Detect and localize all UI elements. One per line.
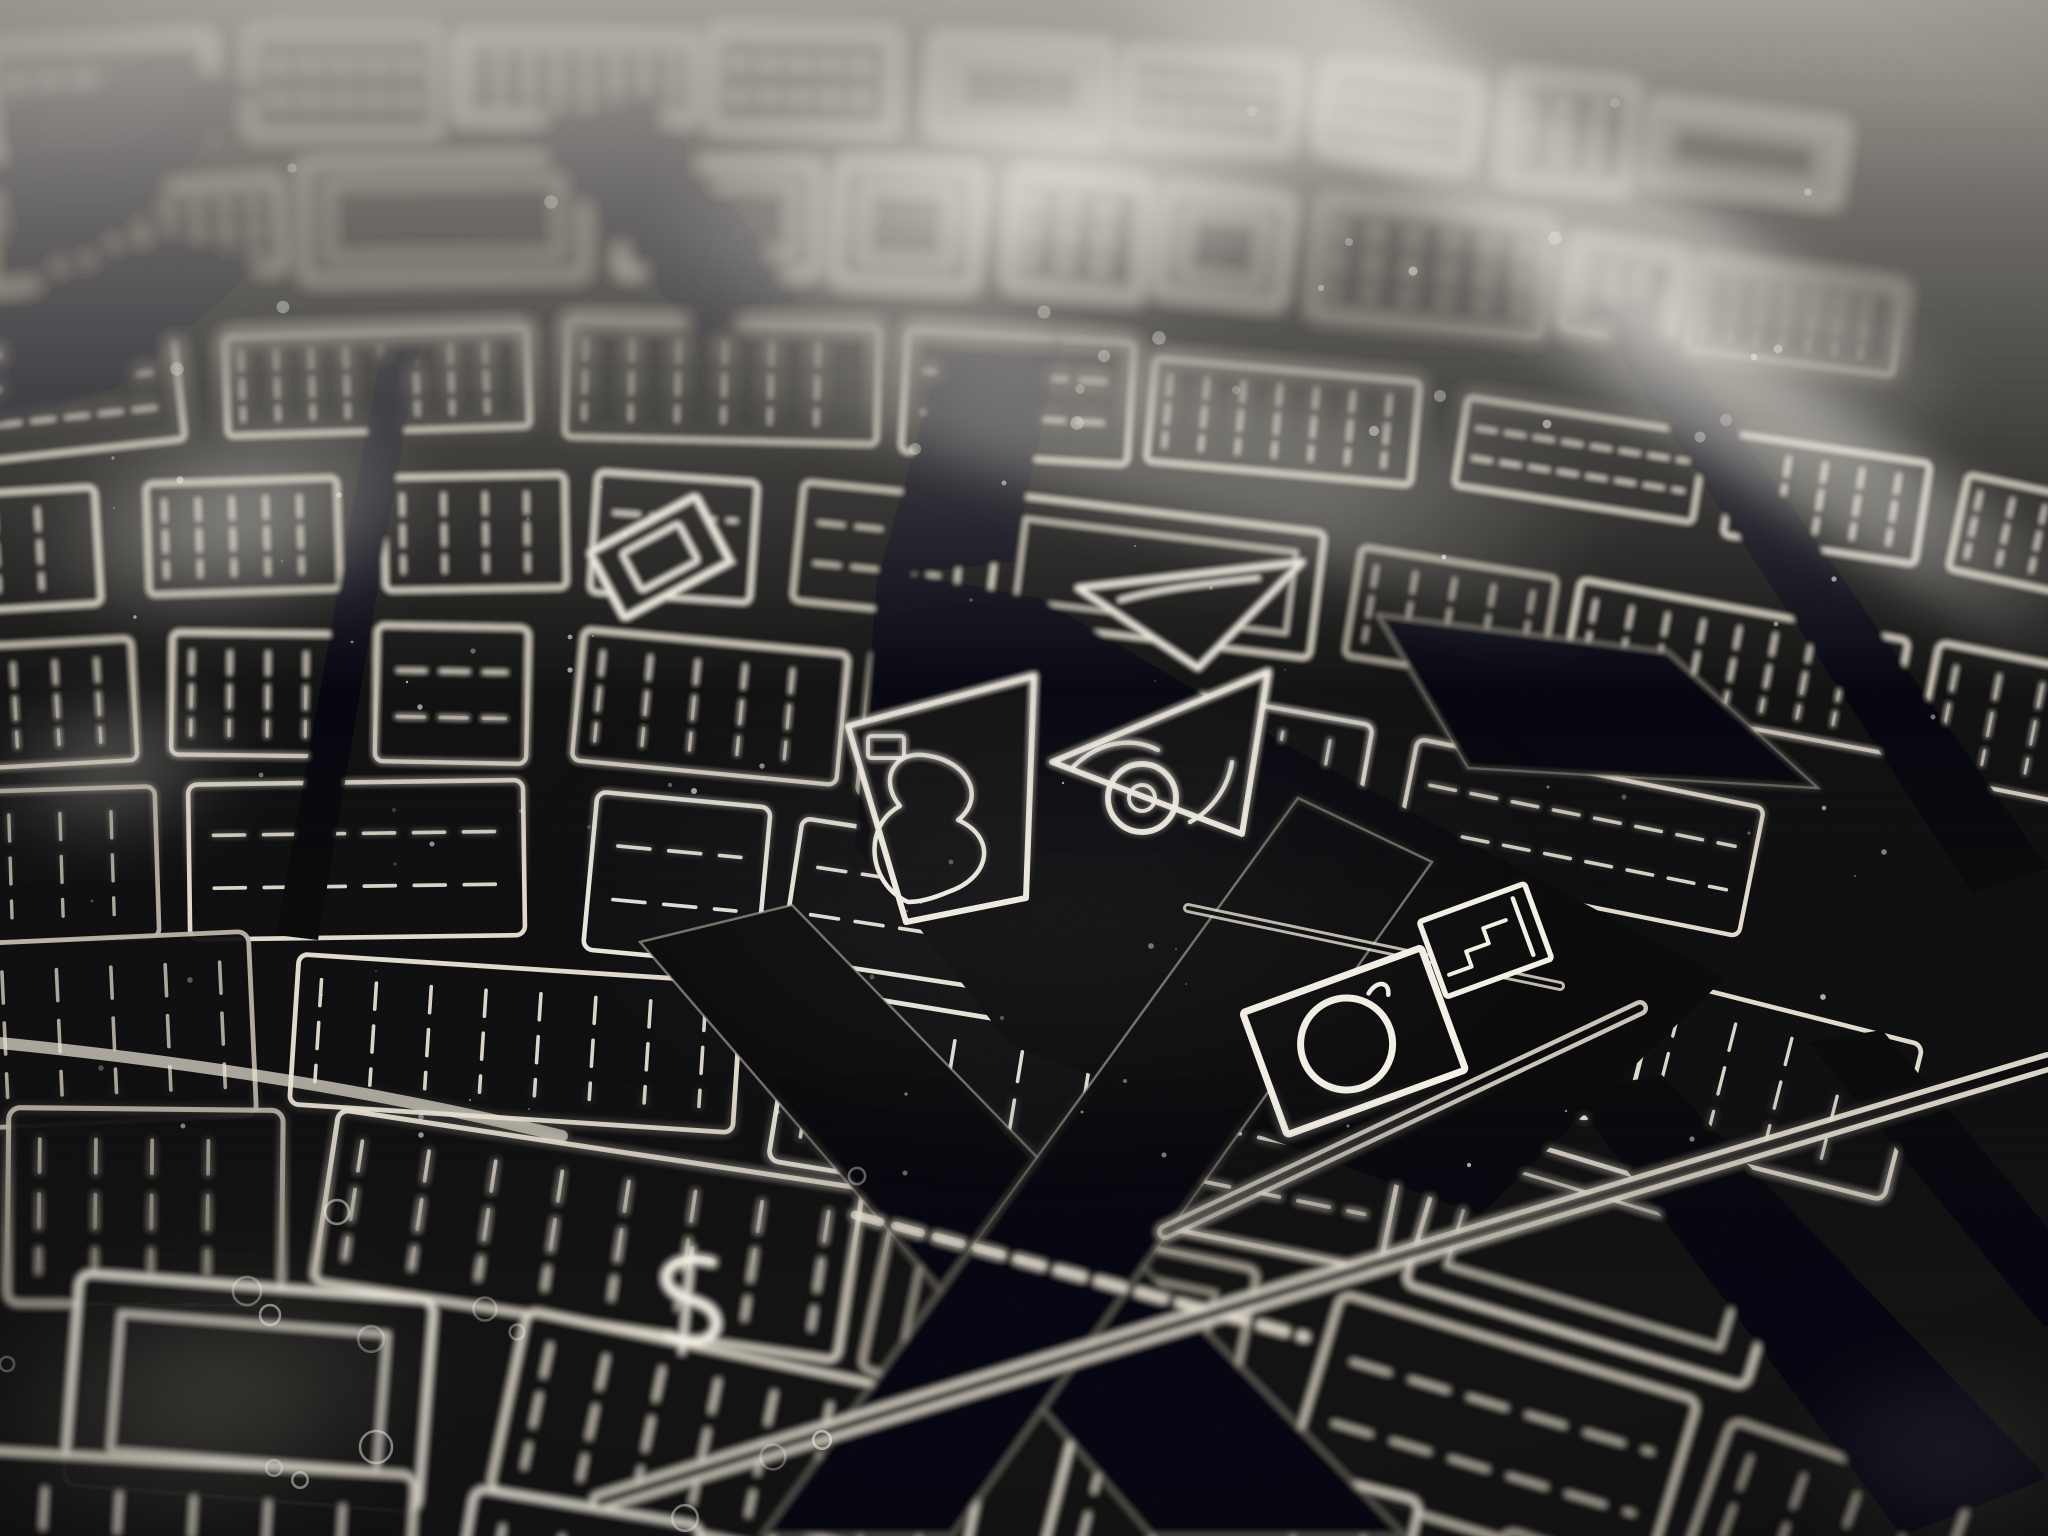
photo-engraved-metal-citymap — [0, 0, 2048, 1536]
metal-grain-noise — [0, 0, 2048, 1536]
engraved-map-plate — [0, 0, 2048, 1536]
